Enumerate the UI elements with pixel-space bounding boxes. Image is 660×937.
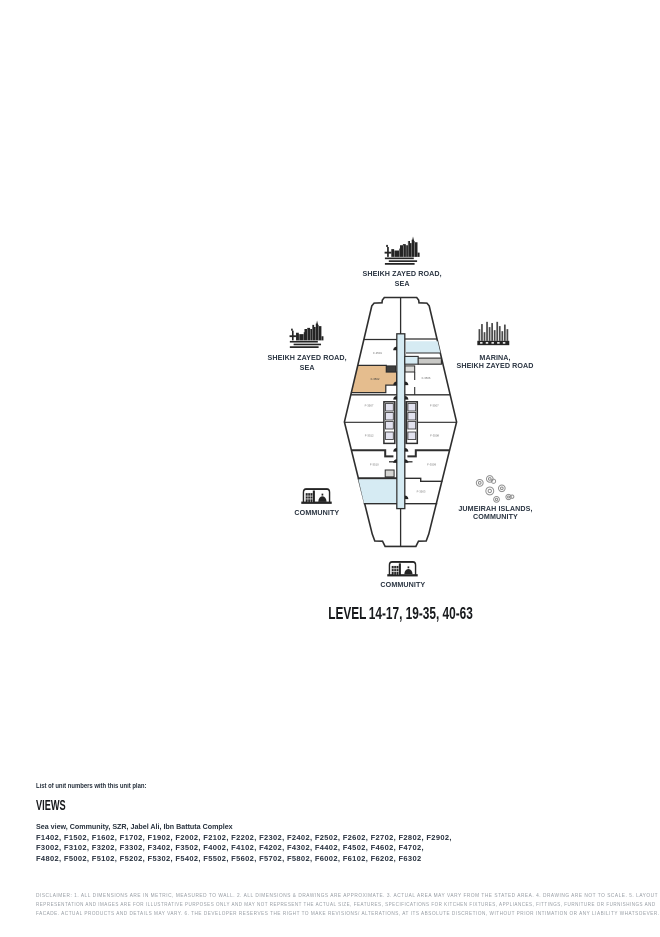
svg-text:F-3502: F-3502 — [371, 377, 380, 381]
svg-text:F-3507: F-3507 — [365, 403, 374, 407]
svg-text:F-3501: F-3501 — [373, 351, 382, 355]
svg-text:F-3509: F-3509 — [427, 462, 436, 466]
svg-text:F-3510: F-3510 — [370, 462, 379, 466]
svg-text:F-3507: F-3507 — [430, 403, 439, 407]
svg-text:F-3508: F-3508 — [430, 433, 439, 437]
svg-text:F-3506: F-3506 — [422, 376, 431, 380]
svg-text:F-3512: F-3512 — [365, 433, 374, 437]
svg-text:F-3503: F-3503 — [417, 490, 426, 494]
